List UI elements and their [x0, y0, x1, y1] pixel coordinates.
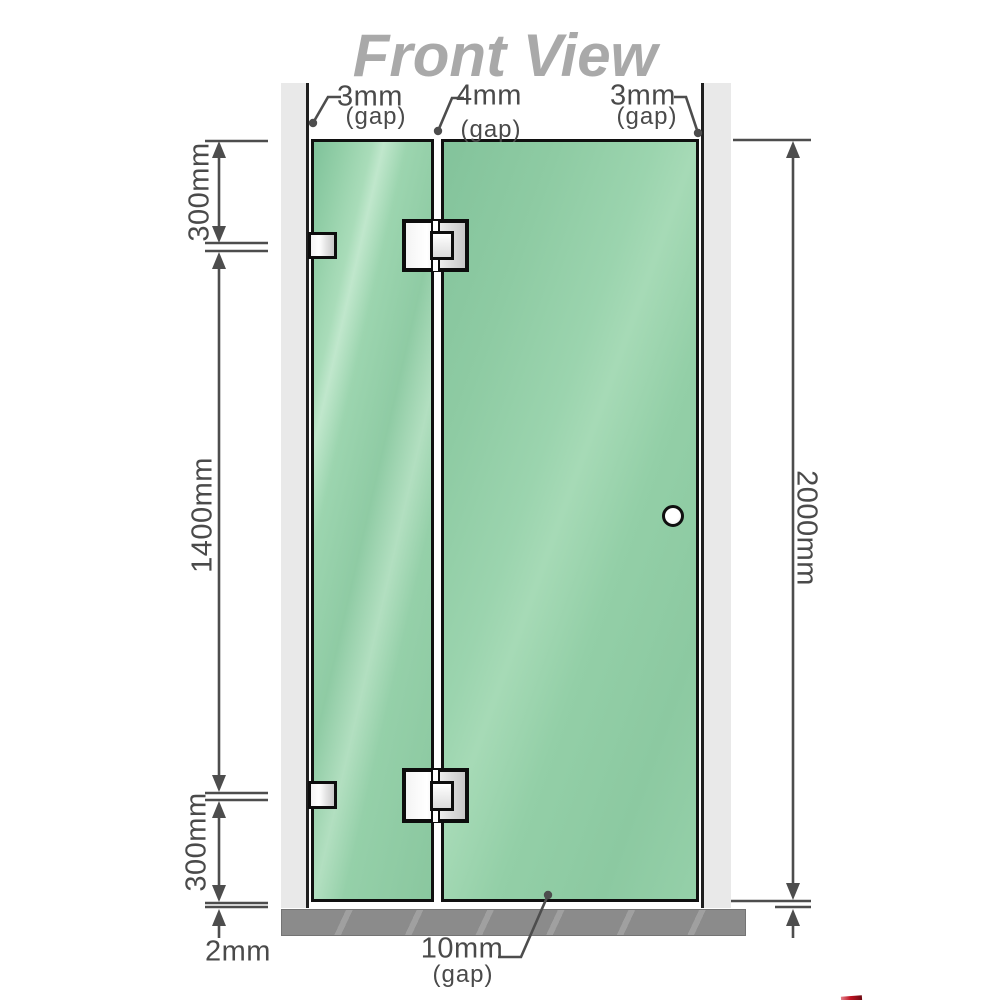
page-title: Front View [353, 26, 657, 86]
floor-base [281, 909, 746, 936]
dim-gap-top-center-qualifier: (gap) [460, 118, 521, 142]
dim-left-bottom-300mm: 300mm [183, 792, 212, 891]
hinge-top-notch [430, 231, 454, 260]
corner-red-mark [841, 995, 862, 1000]
left-wall [281, 83, 309, 908]
dim-gap-top-left-qualifier: (gap) [345, 105, 406, 129]
glass-panel-door [441, 139, 699, 902]
door-knob [662, 505, 684, 527]
dim-gap-top-right-qualifier: (gap) [616, 105, 677, 129]
wall-bracket-bottom [308, 781, 337, 809]
dim-right-2000mm: 2000mm [792, 470, 821, 586]
hinge-bottom-notch [430, 781, 454, 811]
dim-bottom-10mm-value: 10mm [421, 935, 504, 964]
dim-bottom-10mm-qualifier: (gap) [432, 963, 493, 987]
shower-screen-front-view-diagram: Front View 3mm (gap) 4mm (gap) 3mm (gap)… [0, 0, 1000, 1000]
dim-bottom-2mm: 2mm [205, 938, 271, 967]
wall-bracket-top [308, 232, 337, 259]
dim-gap-top-center-value: 4mm [456, 82, 522, 111]
right-wall [701, 83, 731, 908]
dim-left-top-300mm: 300mm [186, 142, 215, 241]
dim-left-middle-1400mm: 1400mm [189, 457, 218, 573]
